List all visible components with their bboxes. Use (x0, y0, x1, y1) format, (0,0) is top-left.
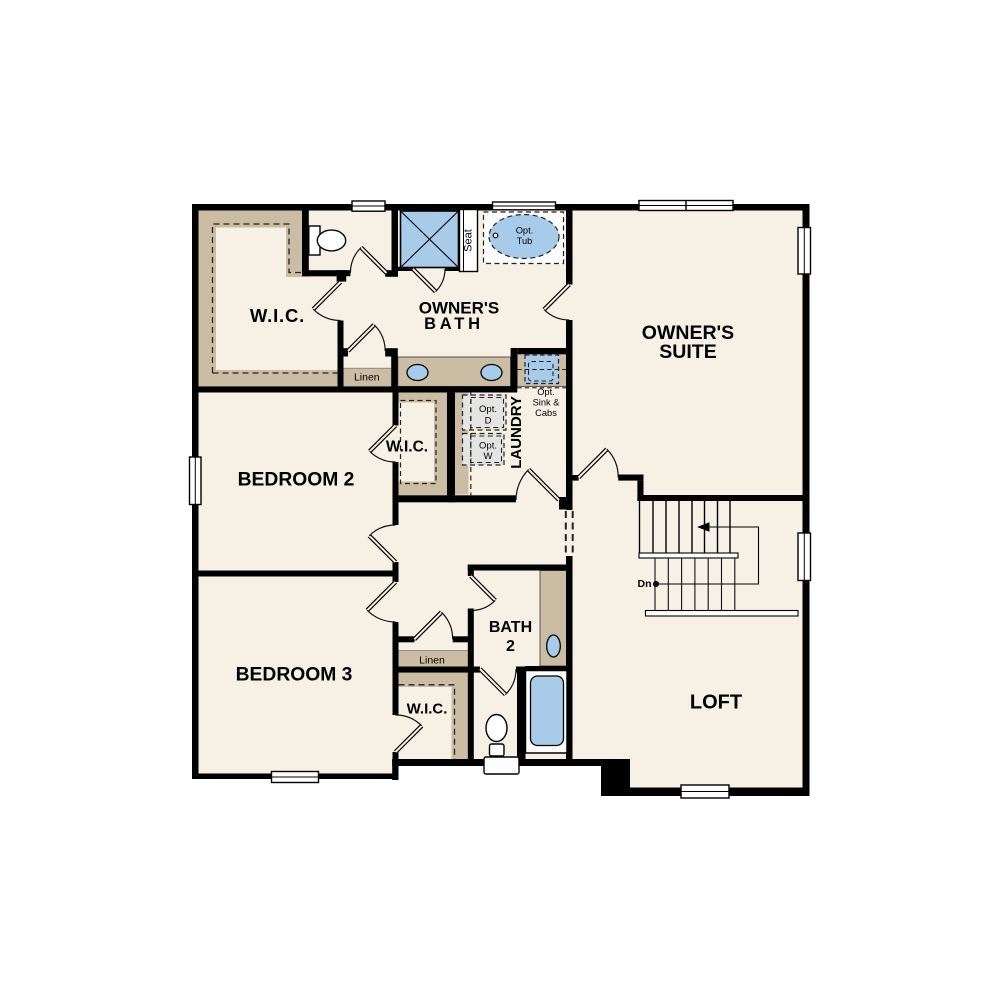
svg-text:Sink &: Sink & (533, 397, 561, 407)
svg-text:LAUNDRY: LAUNDRY (508, 396, 525, 469)
svg-text:D: D (485, 415, 492, 426)
svg-text:Seat: Seat (462, 229, 474, 252)
svg-text:2: 2 (506, 638, 515, 655)
svg-text:Linen: Linen (354, 372, 380, 384)
svg-text:Linen: Linen (419, 654, 445, 666)
svg-text:BEDROOM 2: BEDROOM 2 (238, 470, 355, 491)
svg-text:Opt.: Opt. (516, 226, 534, 236)
svg-text:SUITE: SUITE (659, 341, 716, 363)
svg-text:W: W (484, 451, 493, 462)
svg-text:Cabs: Cabs (535, 408, 557, 418)
svg-text:Dn: Dn (638, 578, 652, 590)
svg-text:W.I.C.: W.I.C. (386, 438, 428, 455)
svg-text:Tub: Tub (517, 236, 533, 246)
svg-text:Opt.: Opt. (479, 404, 497, 415)
svg-text:W.I.C.: W.I.C. (250, 305, 305, 326)
svg-text:BATH: BATH (489, 619, 532, 636)
svg-text:W.I.C.: W.I.C. (407, 700, 448, 717)
svg-text:BEDROOM 3: BEDROOM 3 (236, 665, 353, 686)
svg-text:BATH: BATH (424, 315, 484, 333)
svg-text:LOFT: LOFT (690, 692, 742, 714)
svg-text:Opt.: Opt. (537, 387, 555, 397)
